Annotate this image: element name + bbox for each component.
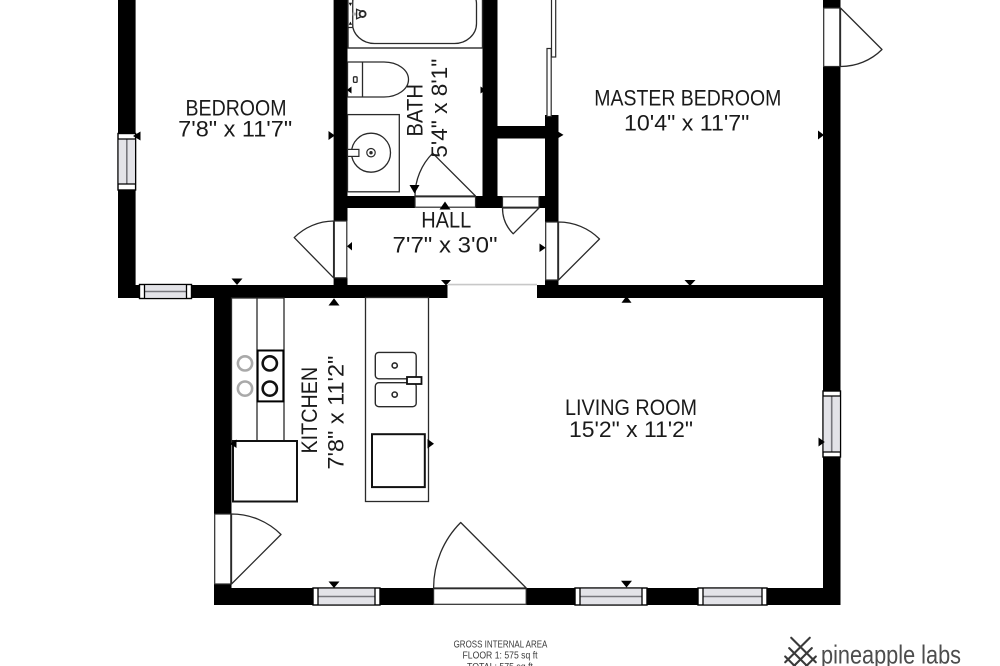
svg-text:10'4" x 11'7": 10'4" x 11'7" xyxy=(624,110,749,135)
svg-text:pineapple labs: pineapple labs xyxy=(821,640,961,666)
svg-text:7'8" x 11'7": 7'8" x 11'7" xyxy=(178,116,292,141)
svg-text:7'8" x 11'2": 7'8" x 11'2" xyxy=(324,356,349,470)
svg-text:5'4" x 8'1": 5'4" x 8'1" xyxy=(427,59,452,158)
svg-text:TOTAL: 575 sq ft: TOTAL: 575 sq ft xyxy=(467,662,533,666)
svg-text:15'2" x 11'2": 15'2" x 11'2" xyxy=(569,417,693,442)
svg-text:HALL: HALL xyxy=(421,208,471,233)
svg-text:MASTER BEDROOM: MASTER BEDROOM xyxy=(594,85,781,110)
svg-text:KITCHEN: KITCHEN xyxy=(297,367,322,454)
svg-text:GROSS INTERNAL AREA: GROSS INTERNAL AREA xyxy=(454,640,548,651)
svg-text:BATH: BATH xyxy=(402,84,427,137)
svg-text:7'7" x 3'0": 7'7" x 3'0" xyxy=(393,232,498,257)
svg-text:FLOOR 1: 575 sq ft: FLOOR 1: 575 sq ft xyxy=(463,651,538,662)
